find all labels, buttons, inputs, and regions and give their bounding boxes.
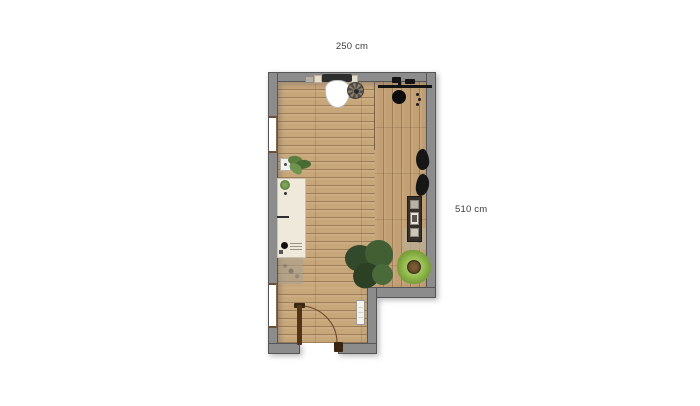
doormat-left[interactable] (279, 258, 303, 284)
dimension-height-label: 510 cm (455, 204, 487, 215)
window-upper-left[interactable] (269, 116, 277, 153)
dimension-width-label: 250 cm (268, 41, 436, 52)
counter-dot-icon (284, 192, 287, 195)
counter-object-icon (279, 250, 283, 254)
wall-hook-icon (416, 103, 419, 106)
plant-large-dark[interactable] (343, 238, 397, 292)
radiator[interactable] (356, 300, 365, 325)
plant-pot-icon (407, 260, 421, 274)
framed-picture-icon (410, 200, 419, 209)
toilet-side-panel-left-icon (314, 75, 322, 83)
framed-picture-icon (410, 212, 419, 225)
counter-label-marks (290, 243, 302, 250)
coat-rack-item-icon (405, 79, 415, 84)
hat-on-rack[interactable] (392, 90, 406, 104)
door-stop (334, 342, 343, 352)
framed-picture-icon (410, 228, 419, 237)
window-lower-left[interactable] (269, 283, 277, 328)
counter-handle-icon (277, 216, 289, 218)
entry-door-leaf[interactable] (297, 305, 302, 345)
floor-fan[interactable] (347, 82, 364, 99)
wall-bottom-right-segment (338, 343, 377, 354)
plant-large-light[interactable] (397, 250, 431, 284)
wall-hook-icon (418, 98, 421, 101)
wall-bottom-left-segment (268, 343, 300, 354)
wall-switch[interactable] (305, 76, 314, 83)
plant-foliage-icon (372, 264, 393, 285)
coat-rack-item-icon (392, 77, 401, 83)
wall-hook-icon (416, 93, 419, 96)
counter-plant-icon (280, 180, 290, 190)
floor-plan-canvas: 250 cm 510 cm (0, 0, 700, 406)
floor-plan (268, 72, 436, 354)
coat-rack-bar[interactable] (378, 85, 432, 88)
picture-shelf[interactable] (407, 196, 422, 242)
counter-object-icon (281, 242, 288, 249)
